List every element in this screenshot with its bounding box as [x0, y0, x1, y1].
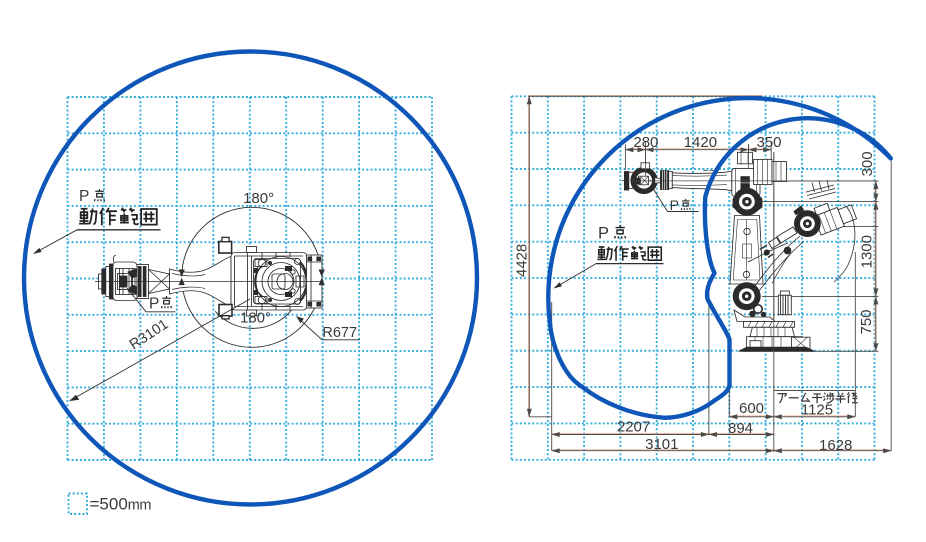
svg-text:P: P [79, 188, 89, 205]
svg-text:P: P [670, 197, 679, 213]
svg-text:1300: 1300 [859, 235, 876, 268]
svg-text:750: 750 [858, 309, 875, 334]
svg-text:350: 350 [756, 134, 781, 151]
svg-text:1628: 1628 [819, 437, 852, 454]
svg-text:P: P [598, 225, 609, 243]
svg-text:P: P [149, 296, 159, 313]
svg-text:180°: 180° [243, 190, 274, 207]
svg-text:R677: R677 [322, 325, 357, 341]
svg-text:4428: 4428 [513, 244, 530, 277]
svg-text:300: 300 [859, 151, 876, 176]
svg-text:600: 600 [739, 400, 764, 417]
svg-text:=500mm: =500mm [90, 495, 152, 514]
svg-text:1125: 1125 [801, 402, 833, 419]
svg-text:1420: 1420 [684, 134, 717, 151]
svg-text:280: 280 [633, 134, 658, 151]
svg-text:3101: 3101 [645, 436, 678, 453]
svg-text:2207: 2207 [617, 419, 650, 436]
svg-text:180°: 180° [240, 310, 271, 327]
svg-text:894: 894 [728, 420, 753, 437]
